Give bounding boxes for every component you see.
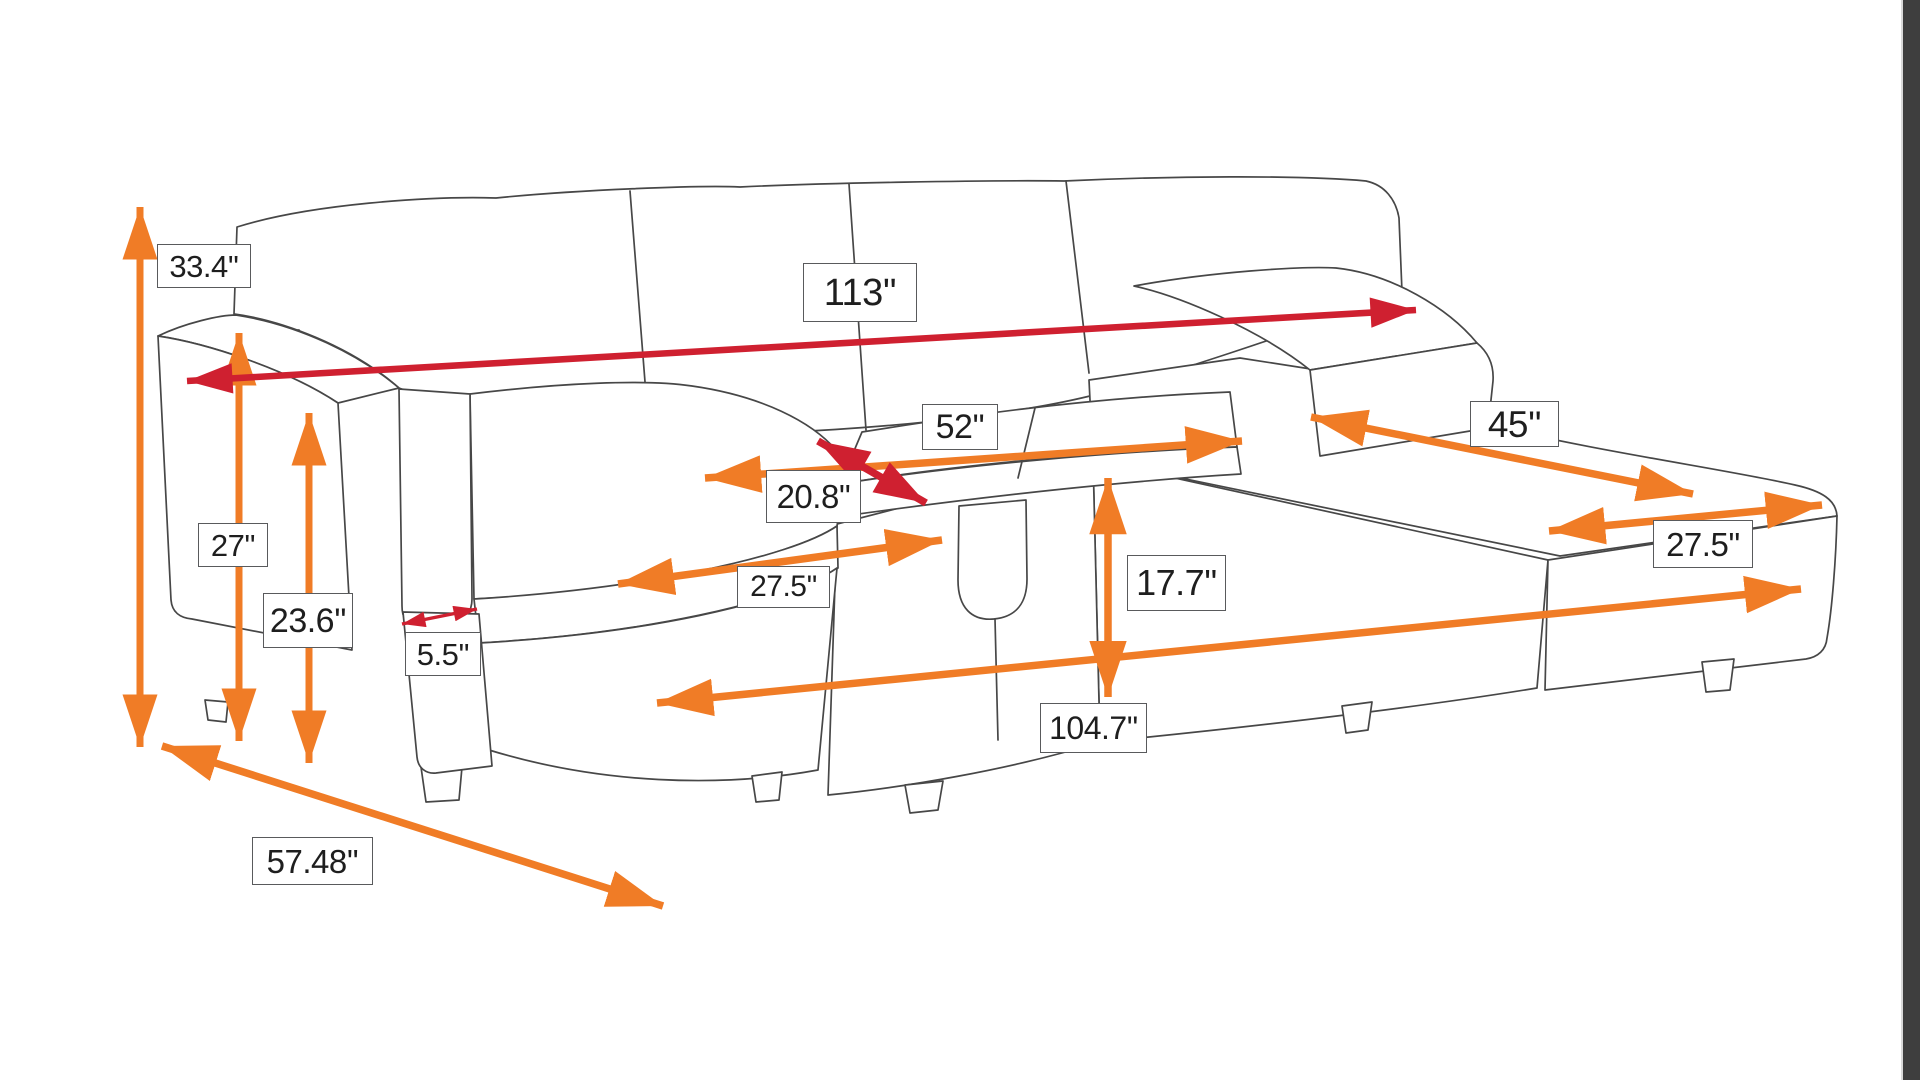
label-seat-depth: 20.8'' xyxy=(766,470,861,523)
left-chaise-leg-2 xyxy=(752,772,782,802)
right-chaise-leg-inner xyxy=(1342,702,1372,733)
sofa-dimension-diagram: 33.4'' 113'' 52'' 20.8'' 27'' 23.6'' 5.5… xyxy=(0,0,1920,1080)
middle-leg xyxy=(905,781,943,813)
label-armrest-width: 5.5'' xyxy=(405,632,481,676)
label-inner-length: 104.7'' xyxy=(1040,703,1147,753)
sofa-drawing-canvas xyxy=(0,0,1920,1080)
label-arm-front-height: 27'' xyxy=(198,523,268,567)
label-chaise-length: 45'' xyxy=(1470,401,1559,447)
label-seat-height: 17.7'' xyxy=(1127,555,1226,611)
right-bolster xyxy=(958,500,1027,619)
label-left-chaise-width: 27.5'' xyxy=(737,566,830,608)
left-bolster xyxy=(399,389,472,625)
label-right-chaise-width: 27.5'' xyxy=(1653,520,1753,568)
label-overall-height: 33.4'' xyxy=(157,244,251,288)
left-arm-leg xyxy=(205,700,228,722)
right-chaise-leg-front xyxy=(1702,659,1734,692)
label-arm-back-height: 23.6'' xyxy=(263,593,353,648)
sofa-line-art xyxy=(158,177,1837,813)
label-seat-width: 52'' xyxy=(922,404,998,450)
label-overall-depth: 57.48'' xyxy=(252,837,373,885)
right-edge-strip xyxy=(1901,0,1920,1080)
label-overall-width: 113'' xyxy=(803,263,917,322)
